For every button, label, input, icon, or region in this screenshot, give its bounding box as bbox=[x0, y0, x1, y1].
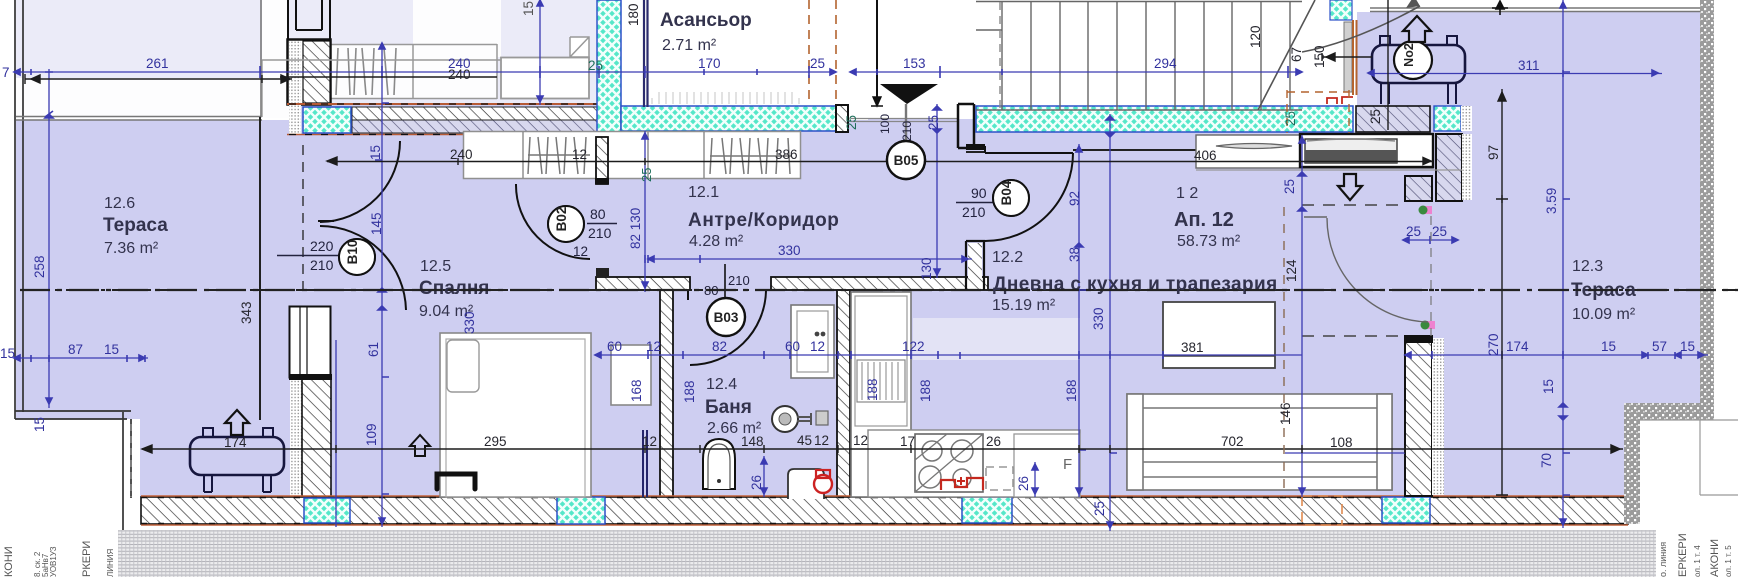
svg-text:7: 7 bbox=[2, 65, 10, 80]
svg-text:Антре/Коридор: Антре/Коридор bbox=[688, 210, 840, 231]
svg-text:7.36 m²: 7.36 m² bbox=[104, 240, 159, 257]
svg-text:АКОНИ: АКОНИ bbox=[1709, 539, 1721, 577]
svg-text:381: 381 bbox=[1181, 340, 1204, 355]
svg-text:150: 150 bbox=[1312, 45, 1327, 68]
svg-text:330: 330 bbox=[462, 311, 477, 334]
svg-text:15: 15 bbox=[32, 417, 47, 432]
svg-text:B04: B04 bbox=[999, 180, 1014, 205]
svg-text:210: 210 bbox=[588, 225, 612, 241]
svg-text:108: 108 bbox=[1330, 435, 1353, 450]
svg-text:ЛИНИЯ: ЛИНИЯ bbox=[106, 548, 115, 577]
svg-text:B05: B05 bbox=[894, 153, 919, 168]
svg-text:25: 25 bbox=[926, 115, 941, 130]
svg-text:12: 12 bbox=[646, 339, 661, 354]
svg-text:Тераса: Тераса bbox=[103, 215, 168, 236]
svg-text:343: 343 bbox=[239, 301, 254, 324]
svg-text:Дневна с кухня и трапезария: Дневна с кухня и трапезария bbox=[993, 274, 1278, 295]
svg-text:Асансьор: Асансьор bbox=[660, 10, 752, 31]
svg-text:153: 153 bbox=[903, 56, 926, 71]
svg-text:330: 330 bbox=[778, 243, 801, 258]
svg-text:174: 174 bbox=[224, 435, 247, 450]
svg-text:25: 25 bbox=[1282, 179, 1297, 194]
svg-text:17: 17 bbox=[900, 434, 915, 449]
svg-text:3.59: 3.59 bbox=[1544, 188, 1559, 214]
svg-text:25: 25 bbox=[1432, 224, 1447, 239]
svg-text:220: 220 bbox=[310, 238, 334, 254]
svg-text:25: 25 bbox=[810, 56, 825, 71]
svg-text:12: 12 bbox=[814, 433, 829, 448]
svg-text:25: 25 bbox=[844, 115, 859, 130]
svg-text:92: 92 bbox=[1067, 191, 1082, 206]
svg-text:57: 57 bbox=[1652, 339, 1667, 354]
svg-text:61: 61 bbox=[366, 342, 381, 357]
svg-text:КОНИ: КОНИ bbox=[3, 546, 15, 577]
svg-text:67: 67 bbox=[1289, 47, 1304, 62]
svg-text:330: 330 bbox=[1091, 307, 1106, 330]
svg-text:УОВ1УЗ: УОВ1УЗ bbox=[49, 546, 58, 577]
svg-text:о. линия: о. линия bbox=[1658, 542, 1668, 577]
svg-text:386: 386 bbox=[775, 147, 798, 162]
svg-text:90: 90 bbox=[971, 185, 987, 201]
svg-text:Спалня: Спалня bbox=[419, 278, 489, 299]
svg-text:60: 60 bbox=[785, 339, 800, 354]
svg-text:B10: B10 bbox=[345, 240, 360, 265]
svg-text:240: 240 bbox=[448, 67, 471, 82]
svg-text:12.3: 12.3 bbox=[1572, 258, 1603, 275]
svg-text:168: 168 bbox=[629, 379, 644, 402]
svg-text:210: 210 bbox=[962, 204, 986, 220]
svg-text:38: 38 bbox=[1067, 247, 1082, 262]
svg-text:12.2: 12.2 bbox=[992, 249, 1023, 266]
svg-text:82: 82 bbox=[712, 339, 727, 354]
svg-text:170: 170 bbox=[698, 56, 721, 71]
svg-text:12: 12 bbox=[853, 433, 868, 448]
svg-text:15: 15 bbox=[104, 342, 119, 357]
svg-text:120: 120 bbox=[1248, 25, 1263, 48]
svg-text:15: 15 bbox=[368, 145, 383, 160]
svg-text:80: 80 bbox=[590, 206, 606, 222]
svg-text:10.09 m²: 10.09 m² bbox=[1572, 306, 1636, 323]
svg-text:146: 146 bbox=[1278, 402, 1293, 425]
svg-text:15: 15 bbox=[0, 346, 15, 361]
svg-text:82 130: 82 130 bbox=[628, 208, 643, 249]
svg-text:15: 15 bbox=[1680, 339, 1695, 354]
svg-text:240: 240 bbox=[450, 147, 473, 162]
svg-text:12: 12 bbox=[572, 147, 587, 162]
svg-text:12.1: 12.1 bbox=[688, 184, 719, 201]
svg-text:15: 15 bbox=[1601, 339, 1616, 354]
svg-text:210: 210 bbox=[310, 257, 334, 273]
svg-text:РКЕРИ: РКЕРИ bbox=[81, 541, 93, 577]
svg-text:148: 148 bbox=[741, 434, 764, 449]
svg-text:58.73 m²: 58.73 m² bbox=[1177, 233, 1241, 250]
svg-text:Баня: Баня bbox=[705, 397, 752, 418]
svg-text:12: 12 bbox=[642, 434, 657, 449]
svg-text:12: 12 bbox=[573, 244, 588, 259]
svg-text:ЕРКЕРИ: ЕРКЕРИ bbox=[1677, 533, 1689, 577]
svg-text:122: 122 bbox=[902, 339, 925, 354]
svg-text:12.5: 12.5 bbox=[420, 258, 451, 275]
svg-text:F: F bbox=[1063, 456, 1072, 473]
svg-text:261: 261 bbox=[146, 56, 169, 71]
svg-text:60: 60 bbox=[607, 339, 622, 354]
svg-text:124: 124 bbox=[1284, 259, 1299, 282]
svg-text:25: 25 bbox=[1406, 224, 1421, 239]
svg-text:87: 87 bbox=[68, 342, 83, 357]
svg-text:97: 97 bbox=[1486, 145, 1501, 160]
svg-text:25: 25 bbox=[639, 168, 654, 182]
svg-text:ол. 1 т. 4: ол. 1 т. 4 bbox=[1693, 545, 1702, 577]
svg-text:15: 15 bbox=[521, 1, 536, 16]
svg-text:145: 145 bbox=[369, 212, 384, 235]
svg-text:25: 25 bbox=[1368, 109, 1383, 124]
svg-text:188: 188 bbox=[682, 380, 697, 403]
svg-text:100: 100 bbox=[878, 114, 892, 134]
svg-text:12.6: 12.6 bbox=[104, 195, 135, 212]
svg-text:311: 311 bbox=[1518, 58, 1540, 73]
svg-text:2.71 m²: 2.71 m² bbox=[662, 37, 717, 54]
svg-text:109: 109 bbox=[364, 423, 379, 446]
svg-text:Ап. 12: Ап. 12 bbox=[1174, 209, 1234, 231]
svg-text:B03: B03 bbox=[714, 310, 739, 325]
svg-text:12.4: 12.4 bbox=[706, 376, 737, 393]
svg-text:210: 210 bbox=[728, 273, 750, 288]
svg-text:26: 26 bbox=[986, 434, 1001, 449]
svg-text:70: 70 bbox=[1539, 453, 1554, 468]
svg-text:270: 270 bbox=[1486, 333, 1501, 356]
svg-text:188: 188 bbox=[918, 379, 933, 402]
svg-text:45: 45 bbox=[797, 433, 812, 448]
svg-text:B02: B02 bbox=[554, 207, 569, 232]
svg-text:26: 26 bbox=[749, 475, 764, 490]
svg-text:406: 406 bbox=[1194, 148, 1217, 163]
svg-text:ол. 1 т. 5: ол. 1 т. 5 bbox=[1724, 545, 1733, 577]
svg-text:1 2: 1 2 bbox=[1176, 185, 1198, 202]
svg-text:15.19 m²: 15.19 m² bbox=[992, 297, 1056, 314]
svg-text:188: 188 bbox=[865, 378, 880, 401]
svg-text:26: 26 bbox=[1016, 476, 1031, 491]
svg-text:188: 188 bbox=[1064, 379, 1079, 402]
svg-text:25: 25 bbox=[1283, 111, 1298, 126]
svg-text:180: 180 bbox=[626, 3, 641, 26]
svg-text:130: 130 bbox=[919, 257, 934, 280]
svg-text:174: 174 bbox=[1506, 339, 1529, 354]
svg-text:294: 294 bbox=[1154, 56, 1177, 71]
svg-text:25: 25 bbox=[588, 58, 603, 73]
svg-text:295: 295 bbox=[484, 434, 507, 449]
svg-text:12: 12 bbox=[810, 339, 825, 354]
svg-text:No2: No2 bbox=[1402, 43, 1416, 67]
svg-text:210: 210 bbox=[900, 121, 914, 141]
svg-text:15: 15 bbox=[1541, 379, 1556, 394]
svg-text:258: 258 bbox=[32, 255, 47, 278]
svg-text:25: 25 bbox=[1092, 501, 1107, 516]
svg-text:702: 702 bbox=[1221, 434, 1244, 449]
svg-text:4.28 m²: 4.28 m² bbox=[689, 233, 744, 250]
